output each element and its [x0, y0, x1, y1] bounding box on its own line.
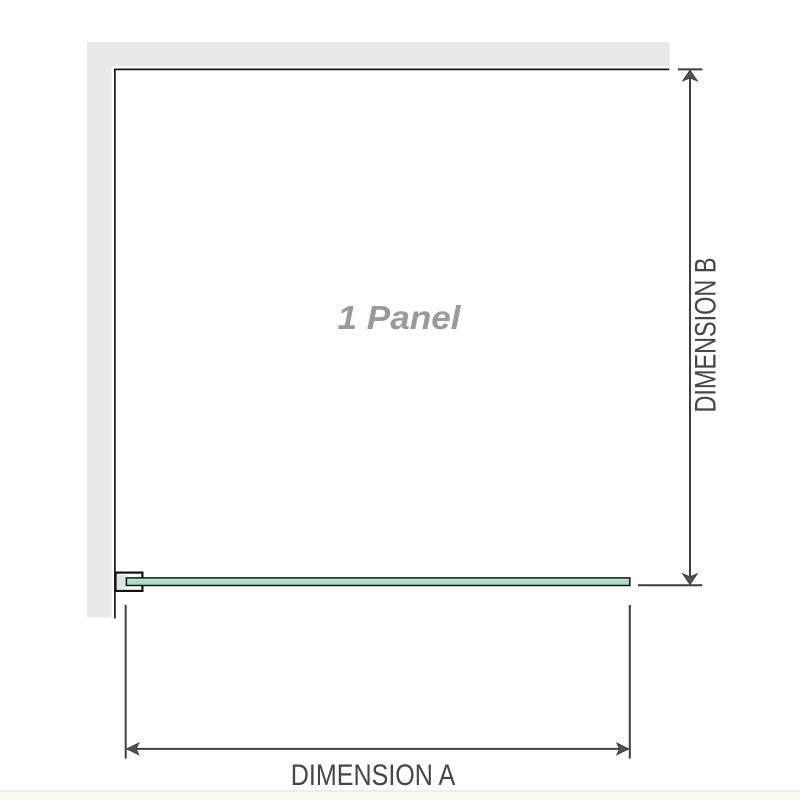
svg-text:1 Panel: 1 Panel: [338, 300, 462, 337]
svg-text:DIMENSION B: DIMENSION B: [690, 258, 723, 413]
svg-text:DIMENSION A: DIMENSION A: [291, 759, 456, 792]
